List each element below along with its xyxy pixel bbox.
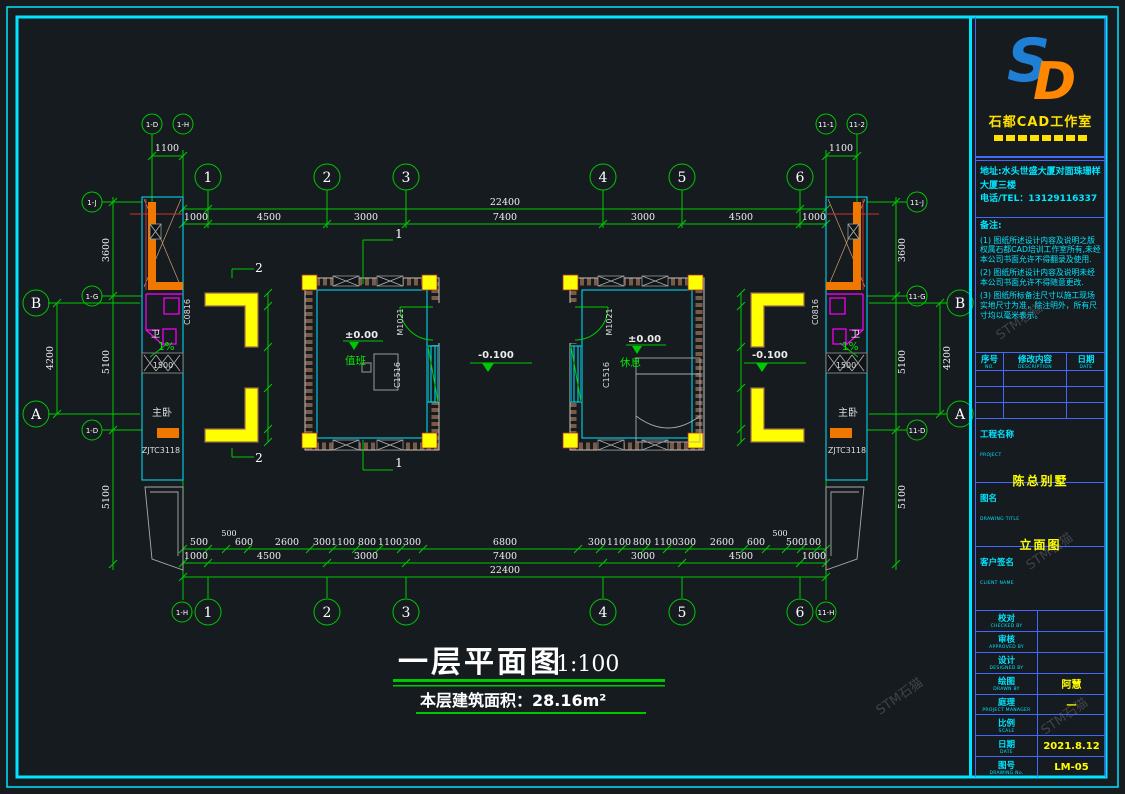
svg-text:2: 2 xyxy=(255,261,263,275)
svg-text:5100: 5100 xyxy=(101,350,112,374)
svg-text:主卧: 主卧 xyxy=(838,406,858,419)
svg-text:3: 3 xyxy=(402,605,411,621)
svg-text:1100: 1100 xyxy=(155,143,179,154)
drawing-caption: 一层平面图 1:100 本层建筑面积：28.16m² xyxy=(393,645,665,714)
studio-name: 石都CAD工作室 xyxy=(976,111,1105,130)
svg-text:3000: 3000 xyxy=(631,212,655,223)
svg-text:7400: 7400 xyxy=(493,551,517,562)
svg-text:±0.00: ±0.00 xyxy=(628,334,661,345)
planter-walls xyxy=(205,293,804,442)
table-row: 校对CHECKED BY xyxy=(976,611,1105,632)
notes-section: 备注: (1) 图纸所述设计内容及说明之版权属石都CAD培训工作室所有,未经本公… xyxy=(976,218,1105,353)
drawing-canvas: STM石猫 STM石猫 STM石猫 STM石猫 1 2 3 4 5 6 1 2 … xyxy=(0,0,1125,794)
svg-text:5100: 5100 xyxy=(897,350,908,374)
duty-room: ±0.00 值班 M1021 C1516 xyxy=(302,275,442,450)
svg-text:3600: 3600 xyxy=(897,238,908,262)
svg-text:600: 600 xyxy=(747,537,765,548)
svg-text:1100: 1100 xyxy=(607,537,631,548)
table-row: 审核APPROVED BY xyxy=(976,632,1105,653)
svg-text:4500: 4500 xyxy=(257,551,281,562)
svg-text:1-G: 1-G xyxy=(86,293,99,301)
svg-text:6800: 6800 xyxy=(493,537,517,548)
svg-text:3000: 3000 xyxy=(354,551,378,562)
svg-text:5: 5 xyxy=(678,605,687,621)
svg-text:800: 800 xyxy=(358,537,376,548)
address-line2: 大厦三楼 xyxy=(980,180,1101,194)
svg-text:4500: 4500 xyxy=(257,212,281,223)
plan-scale: 1:100 xyxy=(556,652,619,677)
svg-text:1: 1 xyxy=(395,456,403,470)
svg-text:1-H: 1-H xyxy=(177,121,189,129)
svg-text:1500: 1500 xyxy=(153,361,173,370)
axis-bubble-4: 4 xyxy=(599,170,608,186)
svg-text:1%: 1% xyxy=(158,341,175,353)
studio-logo-icon: S D xyxy=(989,21,1093,105)
svg-text:1: 1 xyxy=(204,605,213,621)
window-label: C1516 xyxy=(393,362,402,388)
project-section: 工程名称 PROJECT 陈总别墅 xyxy=(976,419,1105,483)
svg-text:4: 4 xyxy=(599,605,608,621)
svg-text:1100: 1100 xyxy=(378,537,402,548)
svg-text:11-D: 11-D xyxy=(909,427,926,435)
svg-text:11-1: 11-1 xyxy=(818,121,834,129)
axis-bubble-5: 5 xyxy=(678,170,687,186)
axis-bubble-2: 2 xyxy=(323,170,332,186)
left-wing xyxy=(130,197,183,570)
wc-label: 卫 xyxy=(151,330,160,340)
svg-text:5100: 5100 xyxy=(101,485,112,509)
note-1: (1) 图纸所述设计内容及说明之版权属石都CAD培训工作室所有,未经本公司书面允… xyxy=(980,236,1101,266)
axis-bubble-B: B xyxy=(31,296,41,312)
svg-text:C0816: C0816 xyxy=(811,299,820,325)
rest-room: ±0.00 休息 M1021 C1516 xyxy=(563,275,704,450)
signature-table: 校对CHECKED BY 审核APPROVED BY 设计DESIGNED BY… xyxy=(976,611,1105,777)
svg-text:1000: 1000 xyxy=(802,212,826,223)
plan-title: 一层平面图 xyxy=(398,645,563,680)
svg-text:1000: 1000 xyxy=(184,212,208,223)
svg-text:11-2: 11-2 xyxy=(849,121,865,129)
svg-text:A: A xyxy=(954,407,966,423)
axis-bubble-A: A xyxy=(30,407,42,423)
address-line1: 地址:水头世盛大厦对面珠珊样 xyxy=(980,166,1101,180)
client-section: 客户签名 CLIENT NAME xyxy=(976,547,1105,611)
svg-text:ZJTC3118: ZJTC3118 xyxy=(828,446,866,455)
component-code: ZJTC3118 xyxy=(142,446,180,455)
date-value: 2021.8.12 xyxy=(1038,736,1105,756)
title-block: S D 石都CAD工作室 地址:水头世盛大厦对面珠珊样 大厦三楼 电话/TEL：… xyxy=(969,17,1108,777)
svg-text:C1516: C1516 xyxy=(602,362,611,388)
svg-text:800: 800 xyxy=(633,537,651,548)
right-wing xyxy=(826,197,879,570)
svg-text:3600: 3600 xyxy=(101,238,112,262)
phone: 电话/TEL：13129116337 xyxy=(980,193,1101,207)
svg-text:1100: 1100 xyxy=(654,537,678,548)
svg-text:2600: 2600 xyxy=(275,537,299,548)
svg-text:4500: 4500 xyxy=(729,551,753,562)
svg-text:100: 100 xyxy=(803,537,821,548)
svg-text:7400: 7400 xyxy=(493,212,517,223)
svg-text:4200: 4200 xyxy=(942,346,953,370)
drawing-number: LM-05 xyxy=(1038,757,1105,777)
svg-text:1%: 1% xyxy=(842,341,859,353)
revision-table: 序号NO. 修改内容DESCRIPTION 日期DATE xyxy=(976,353,1105,419)
svg-text:300: 300 xyxy=(588,537,606,548)
svg-text:1500: 1500 xyxy=(836,361,856,370)
svg-text:600: 600 xyxy=(235,537,253,548)
table-row: 图号DRAWING No.LM-05 xyxy=(976,757,1105,777)
svg-text:1000: 1000 xyxy=(184,551,208,562)
svg-text:1100: 1100 xyxy=(829,143,853,154)
svg-text:500: 500 xyxy=(190,537,208,548)
svg-text:1000: 1000 xyxy=(802,551,826,562)
svg-text:M1021: M1021 xyxy=(605,308,614,335)
svg-text:4200: 4200 xyxy=(45,346,56,370)
door-label: M1021 xyxy=(396,308,405,335)
svg-text:C0816: C0816 xyxy=(183,299,192,325)
svg-text:500: 500 xyxy=(786,537,804,548)
axis-bubble-3: 3 xyxy=(402,170,411,186)
svg-text:1-J: 1-J xyxy=(87,199,96,207)
area-note: 本层建筑面积：28.16m² xyxy=(420,691,606,710)
table-row: 庭理PROJECT MANAGER一 xyxy=(976,695,1105,716)
room-name: 休息 xyxy=(620,356,641,369)
svg-text:300: 300 xyxy=(313,537,331,548)
svg-text:1-D: 1-D xyxy=(86,427,98,435)
level-neg-center: -0.100 xyxy=(478,350,514,361)
master-room: 主卧 xyxy=(152,406,172,419)
svg-text:1-H: 1-H xyxy=(176,609,188,617)
note-3: (3) 图纸所标备注尺寸以施工现场实地尺寸为准，除注明外，所有尺寸均以毫米表示。 xyxy=(980,291,1101,321)
studio-subtitle-marks xyxy=(976,135,1105,141)
svg-text:2: 2 xyxy=(255,451,263,465)
svg-text:6: 6 xyxy=(796,605,805,621)
room-name: 值班 xyxy=(345,354,366,367)
address-section: 地址:水头世盛大厦对面珠珊样 大厦三楼 电话/TEL：13129116337 xyxy=(976,161,1105,218)
svg-text:STM石猫: STM石猫 xyxy=(874,675,926,718)
dim-total-bottom: 22400 xyxy=(490,565,520,576)
svg-text:D: D xyxy=(1033,52,1076,105)
svg-text:1100: 1100 xyxy=(331,537,355,548)
svg-text:11-J: 11-J xyxy=(910,199,924,207)
svg-text:卫: 卫 xyxy=(851,330,860,340)
svg-text:11-H: 11-H xyxy=(818,609,835,617)
sub-axis-bubble: 1-D xyxy=(146,121,158,129)
axis-bubble-6: 6 xyxy=(796,170,805,186)
cad-sheet: STM石猫 STM石猫 STM石猫 STM石猫 1 2 3 4 5 6 1 2 … xyxy=(0,0,1125,794)
table-row: 比例SCALE xyxy=(976,715,1105,736)
svg-text:5100: 5100 xyxy=(897,485,908,509)
table-row: 绘图DRAWN BY阿慧 xyxy=(976,674,1105,695)
note-2: (2) 图纸所述设计内容及说明未经本公司书面允许不得随意更改. xyxy=(980,268,1101,288)
table-row: 设计DESIGNED BY xyxy=(976,653,1105,674)
svg-text:B: B xyxy=(955,296,965,312)
axis-bubble-1: 1 xyxy=(204,170,213,186)
svg-text:3000: 3000 xyxy=(631,551,655,562)
logo-section: S D 石都CAD工作室 xyxy=(976,17,1105,157)
level-neg-right: -0.100 xyxy=(752,350,788,361)
notes-title: 备注: xyxy=(980,221,1101,233)
svg-text:3000: 3000 xyxy=(354,212,378,223)
table-row: 日期DATE2021.8.12 xyxy=(976,736,1105,757)
svg-text:300: 300 xyxy=(678,537,696,548)
svg-text:4500: 4500 xyxy=(729,212,753,223)
drawing-title-section: 图名 DRAWING TITLE 立面图 xyxy=(976,483,1105,547)
dim-total-top: 22400 xyxy=(490,197,520,208)
level-label: ±0.00 xyxy=(345,330,378,341)
svg-text:2: 2 xyxy=(323,605,332,621)
svg-text:300: 300 xyxy=(403,537,421,548)
svg-text:2600: 2600 xyxy=(710,537,734,548)
svg-text:1: 1 xyxy=(395,227,403,241)
svg-text:11-G: 11-G xyxy=(908,293,925,301)
